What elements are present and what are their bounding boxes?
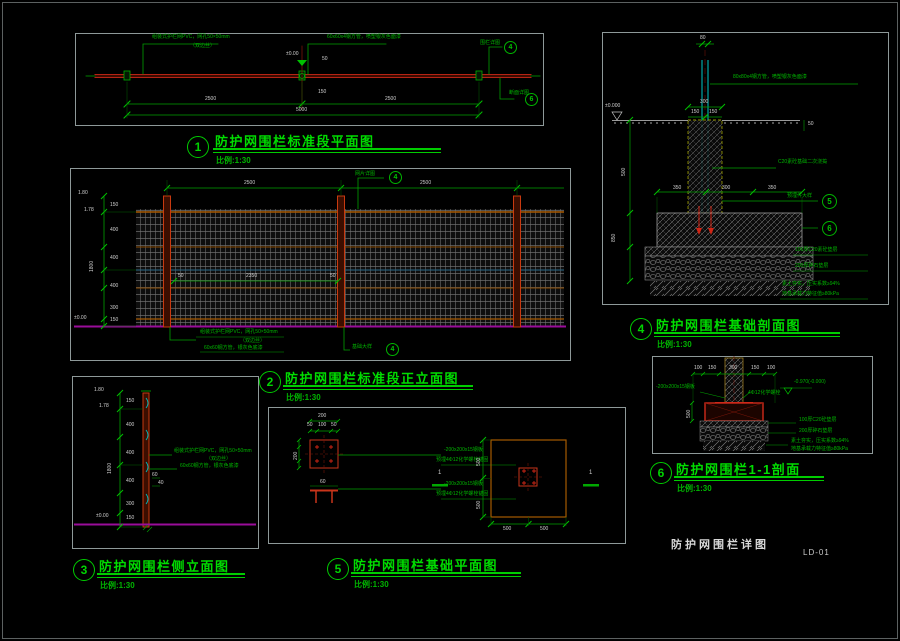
d3-mesh-note-1: 组装式护栏网PVC，网孔50×50mm bbox=[174, 449, 252, 455]
d4-callout-6-bubble: 6 bbox=[822, 221, 837, 236]
d1-dim-b: 2500 bbox=[385, 97, 396, 103]
d4-cushion-note: 100厚C20素砼垫层 bbox=[795, 248, 838, 254]
d2-number-bubble: 2 bbox=[259, 371, 281, 393]
d2-dim-50a: 50 bbox=[178, 274, 184, 280]
d6-dim-100a: 100 bbox=[694, 366, 702, 372]
d3-seg-2: 400 bbox=[126, 423, 134, 429]
d4-dim-150b: 150 bbox=[709, 110, 717, 116]
d6-soil-note-2: 地基承载力特征值≥80kPa bbox=[791, 447, 848, 453]
d1-mesh-note-1: 组装式护栏网PVC，网孔50×50mm bbox=[152, 35, 230, 41]
d2-callout-top-bubble: 4 bbox=[389, 171, 402, 184]
d4-soil-note-2: 地基承载力特征值≥80kPa bbox=[782, 292, 839, 298]
d5-plate-dim-200: 200 bbox=[318, 414, 326, 420]
d4-dim-row-1: 350 bbox=[673, 186, 681, 192]
d4-dim-50: 50 bbox=[808, 122, 814, 128]
d5-dim-60: 60 bbox=[320, 480, 326, 486]
d3-seg-6: 150 bbox=[126, 516, 134, 522]
d5-plate-dim-50a: 50 bbox=[307, 423, 313, 429]
d4-soil-note-1: 素土夯实，压实系数≥94% bbox=[782, 282, 840, 288]
d1-dim-small-1: 50 bbox=[322, 57, 328, 63]
d2-height-total: 1800 bbox=[90, 261, 96, 272]
d2-callout-top-label: 网片详图 bbox=[355, 172, 375, 178]
d6-dim-100b: 100 bbox=[767, 366, 775, 372]
d1-dim-small-2: 150 bbox=[318, 90, 326, 96]
d4-dim-row-2: 300 bbox=[722, 186, 730, 192]
d1-title-underline bbox=[213, 148, 441, 153]
d4-gravel-note: 200厚碎石垫层 bbox=[795, 264, 828, 270]
d2-post-note: 60x60钢方管，银灰色底漆 bbox=[204, 346, 263, 352]
d4-level: ±0.000 bbox=[605, 104, 620, 110]
d6-cushion-note: 100厚C20砼垫层 bbox=[799, 418, 837, 424]
d2-seg-1: 150 bbox=[110, 203, 118, 209]
d3-seg-4: 400 bbox=[126, 479, 134, 485]
d2-dim-b: 2500 bbox=[420, 181, 431, 187]
d2-dim-mid: 2350 bbox=[246, 274, 257, 280]
d1-level: ±0.00 bbox=[286, 52, 298, 58]
d5-plate-b-note-1: -200x200x15钢板 bbox=[444, 482, 483, 488]
d3-number-bubble: 3 bbox=[73, 559, 95, 581]
d4-callout-5-label: 预埋件大样 bbox=[787, 194, 812, 200]
d3-dim-b: 40 bbox=[158, 481, 164, 487]
d1-dim-total: 5000 bbox=[296, 108, 307, 114]
d2-level-zero: ±0.00 bbox=[74, 316, 86, 322]
d5-section-mark-1: 1 bbox=[438, 470, 441, 477]
d5-plate-b-note-2: 预埋4Φ12化学螺栓锚固 bbox=[436, 492, 488, 498]
d3-height-total: 1800 bbox=[108, 463, 114, 474]
d6-soil-note-1: 素土夯实，压实系数≥94% bbox=[791, 439, 849, 445]
d5-plate-dim-50b: 50 bbox=[331, 423, 337, 429]
d5-plate-dim-100: 100 bbox=[318, 423, 326, 429]
d2-level-1: 1.80 bbox=[78, 191, 88, 197]
d5-plate-dim-left-200: 200 bbox=[294, 452, 300, 460]
sheet-number: LD-01 bbox=[803, 548, 830, 557]
d5-plate-a-note-1: -200x200x15钢板 bbox=[444, 448, 483, 454]
d6-title-underline bbox=[674, 476, 824, 481]
d4-title-underline bbox=[654, 332, 840, 337]
d3-level-1: 1.80 bbox=[94, 388, 104, 394]
d4-dim-top: 80 bbox=[700, 36, 706, 42]
d3-level-zero: ±0.00 bbox=[96, 514, 108, 520]
d2-callout-bottom-bubble: 4 bbox=[386, 343, 399, 356]
d6-number-bubble: 6 bbox=[650, 462, 672, 484]
d5-title-underline bbox=[351, 572, 521, 577]
d1-number-bubble: 1 bbox=[187, 136, 209, 158]
d3-scale: 比例:1:30 bbox=[100, 580, 135, 591]
d1-scale: 比例:1:30 bbox=[216, 155, 251, 166]
d4-number-bubble: 4 bbox=[630, 318, 652, 340]
d5-vdim-500a: 500 bbox=[477, 458, 483, 466]
d2-dim-a: 2500 bbox=[244, 181, 255, 187]
d2-seg-5: 300 bbox=[110, 306, 118, 312]
d2-seg-6: 150 bbox=[110, 318, 118, 324]
d3-post-note: 60x60钢方管，银灰色底漆 bbox=[180, 464, 239, 470]
d6-dim-300: 300 bbox=[729, 366, 737, 372]
d2-seg-3: 400 bbox=[110, 256, 118, 262]
d4-dim-500: 500 bbox=[622, 168, 628, 176]
d6-plate-note: -200x200x15钢板 bbox=[656, 385, 695, 391]
d4-grout-note: C20素砼基础二次浇捣 bbox=[778, 160, 827, 166]
d2-dim-50b: 50 bbox=[330, 274, 336, 280]
d1-post-note: 60x60x4钢方管，喷塑银灰色面漆 bbox=[327, 35, 401, 41]
d5-hdim-500b: 500 bbox=[540, 527, 548, 533]
d5-vdim-500b: 500 bbox=[477, 501, 483, 509]
sheet-title: 防护网围栏详图 bbox=[671, 536, 769, 552]
d4-post-note: 80x80x4钢方管，喷塑银灰色面漆 bbox=[733, 75, 807, 81]
d3-level-2: 1.78 bbox=[99, 404, 109, 410]
d3-mesh-note-2: （双边丝） bbox=[206, 457, 231, 463]
d4-dim-300: 300 bbox=[700, 100, 708, 106]
d6-scale: 比例:1:30 bbox=[677, 483, 712, 494]
d2-elevation-linework bbox=[71, 169, 571, 361]
d2-scale: 比例:1:30 bbox=[286, 392, 321, 403]
d4-dim-850: 850 bbox=[612, 234, 618, 242]
d1-plan-linework bbox=[76, 34, 544, 126]
d1-callout-top-label: 围栏详图 bbox=[480, 41, 500, 47]
d5-number-bubble: 5 bbox=[327, 558, 349, 580]
d4-dim-row-3: 350 bbox=[768, 186, 776, 192]
d1-dim-a: 2500 bbox=[205, 97, 216, 103]
d5-hdim-500a: 500 bbox=[503, 527, 511, 533]
d2-mesh-note-2: （双边丝） bbox=[240, 339, 265, 345]
d4-scale: 比例:1:30 bbox=[657, 339, 692, 350]
d4-dim-150a: 150 bbox=[691, 110, 699, 116]
d6-gravel-note: 200厚碎石垫层 bbox=[799, 429, 832, 435]
d2-mesh-note-1: 组装式护栏网PVC，网孔50×50mm bbox=[200, 330, 278, 336]
d4-callout-5-bubble: 5 bbox=[822, 194, 837, 209]
d6-dim-150a: 150 bbox=[708, 366, 716, 372]
d6-dim-500: 500 bbox=[687, 410, 693, 418]
d1-mesh-note-2: （双边丝） bbox=[190, 44, 215, 50]
d2-level-2: 1.78 bbox=[84, 208, 94, 214]
d2-seg-4: 400 bbox=[110, 284, 118, 290]
d2-seg-2: 400 bbox=[110, 228, 118, 234]
d5-section-mark-2: 1 bbox=[589, 470, 592, 477]
cad-sheet: 组装式护栏网PVC，网孔50×50mm （双边丝） 60x60x4钢方管，喷塑银… bbox=[0, 0, 900, 641]
d3-dim-a: 60 bbox=[152, 473, 158, 479]
d5-scale: 比例:1:30 bbox=[354, 579, 389, 590]
d3-seg-3: 400 bbox=[126, 451, 134, 457]
d2-title-underline bbox=[283, 385, 473, 390]
d6-dim-150b: 150 bbox=[751, 366, 759, 372]
d3-seg-1: 150 bbox=[126, 399, 134, 405]
d3-title-underline bbox=[97, 573, 245, 578]
d2-callout-bottom-label: 基础大样 bbox=[352, 345, 372, 351]
d6-level: -0.970(-0.000) bbox=[794, 380, 826, 386]
d3-seg-5: 300 bbox=[126, 502, 134, 508]
d1-callout-bottom-bubble: 6 bbox=[525, 93, 538, 106]
d1-callout-top-bubble: 4 bbox=[504, 41, 517, 54]
d6-bolt-note: 4Φ12化学螺栓 bbox=[748, 391, 780, 397]
